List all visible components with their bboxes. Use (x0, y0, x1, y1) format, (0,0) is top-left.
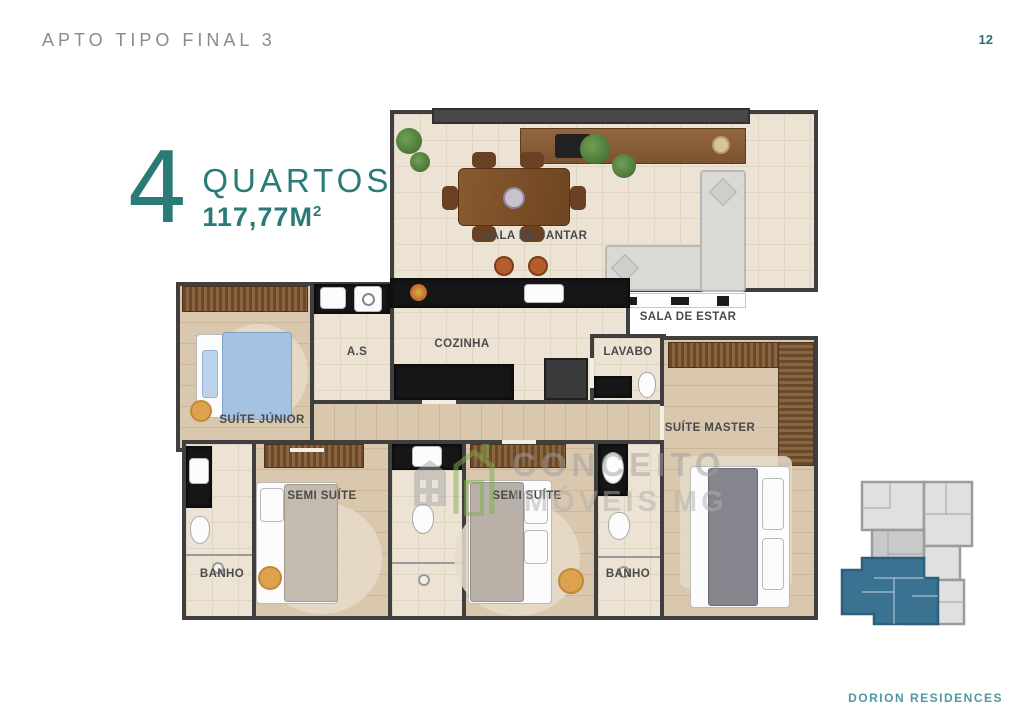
label-suite-master: SUÍTE MASTER (640, 422, 780, 434)
label-sala-de-estar: SALA DE ESTAR (613, 311, 763, 323)
bath2-toilet (608, 512, 630, 540)
decor-bowl (712, 136, 730, 154)
bed-junior-pillow (202, 350, 218, 398)
pouf (258, 566, 282, 590)
bath2-sink (602, 452, 624, 484)
bed-master-duvet (708, 468, 758, 606)
bar-stool (528, 256, 548, 276)
laundry-sink (320, 287, 346, 309)
bed-master-pillow (762, 478, 784, 530)
key-plan (832, 474, 1002, 630)
kitchen-lower-cabinets (394, 364, 514, 400)
label-cozinha: COZINHA (412, 338, 512, 350)
shower-divider (186, 554, 252, 556)
bath-mid-toilet (412, 504, 434, 534)
wardrobe (182, 286, 308, 312)
fruit-bowl (410, 284, 427, 301)
label-suite-junior: SUÍTE JÚNIOR (192, 414, 332, 426)
door-gap (422, 400, 456, 404)
bed-junior-duvet (222, 332, 292, 420)
label-semi-suite-2: SEMI SUÍTE (457, 490, 597, 502)
label-area-servico: A.S (332, 346, 382, 358)
bar-stool (494, 256, 514, 276)
door-gap (502, 440, 536, 444)
shower-drain-icon (418, 574, 430, 586)
footer-brand: DORION RESIDENCES (848, 691, 1003, 705)
plant-icon (410, 152, 430, 172)
plant-icon (580, 134, 610, 164)
label-banho-1: BANHO (184, 568, 260, 580)
shower-divider (392, 562, 462, 564)
bath1-toilet (190, 516, 210, 544)
floor-plan: SALA DE JANTAR SALA DE ESTAR COZINHA A.S… (172, 106, 822, 622)
bed-master-pillow (762, 538, 784, 590)
kitchen-sink (524, 284, 564, 303)
label-sala-de-jantar: SALA DE JANTAR (460, 230, 610, 242)
key-plan-highlighted-unit (842, 558, 938, 624)
label-semi-suite-1: SEMI SUÍTE (252, 490, 392, 502)
room-hallway (310, 400, 664, 444)
balcony-rail (432, 108, 750, 124)
wardrobe (470, 444, 566, 468)
page-number: 12 (979, 32, 993, 47)
plant-icon (396, 128, 422, 154)
sofa-vertical (700, 170, 746, 292)
label-lavabo: LAVABO (590, 346, 666, 358)
label-banho-2: BANHO (590, 568, 666, 580)
plant-icon (612, 154, 636, 178)
wardrobe (778, 342, 814, 466)
bath-mid-sink (412, 446, 442, 467)
lavabo-toilet (638, 372, 656, 398)
bath1-sink (189, 458, 209, 484)
stove (544, 358, 588, 400)
door-gap (290, 448, 324, 452)
wardrobe (668, 342, 786, 368)
bed-semi2-pillow (524, 530, 548, 564)
dining-table (458, 168, 570, 226)
pouf (558, 568, 584, 594)
washing-machine-icon (354, 286, 382, 312)
door-gap (590, 358, 594, 388)
page-title: APTO TIPO FINAL 3 (42, 30, 276, 51)
shower-divider (598, 556, 660, 558)
lavabo-counter (594, 376, 632, 398)
brochure-page: APTO TIPO FINAL 3 12 4 QUARTOS 117,77M2 (0, 0, 1031, 723)
